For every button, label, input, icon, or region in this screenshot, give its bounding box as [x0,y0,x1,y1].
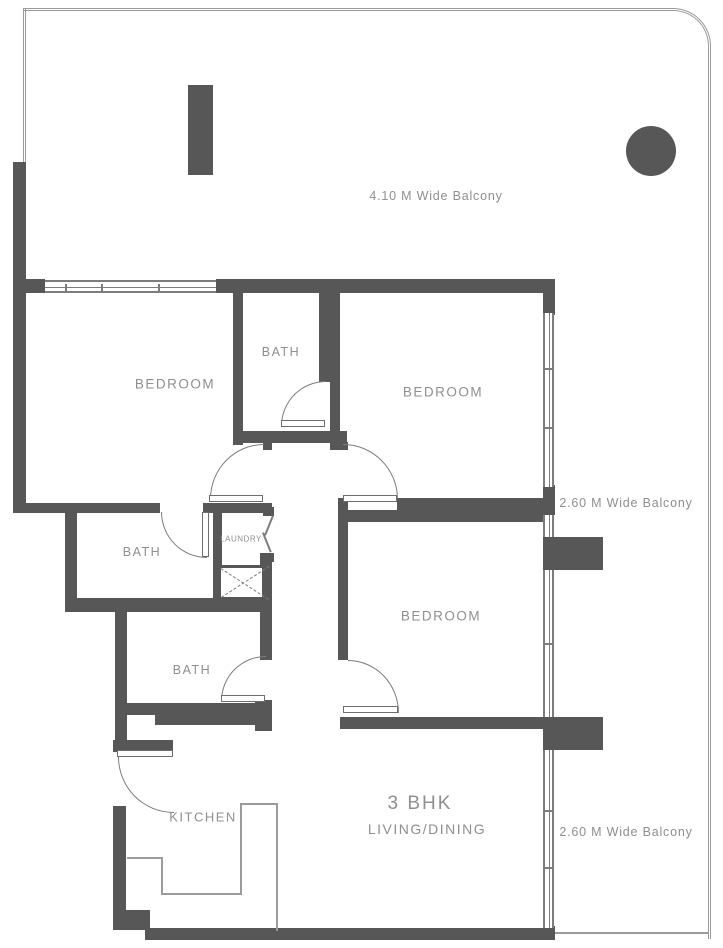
wall-segment [65,598,272,612]
wall-segment [203,503,272,513]
wall-segment [543,293,555,315]
wall-segment [338,510,543,522]
door-leaf [209,495,263,502]
door-leaf [117,750,173,757]
wall-segment [26,279,45,293]
room-label-bath-top: BATH [262,345,300,359]
door-leaf [343,495,397,502]
window-symbol [543,515,554,537]
window-mullion-tick [65,284,67,293]
wall-pier [543,537,603,570]
wall-segment [233,431,347,443]
balcony-label-right-upper: 2.60 M Wide Balcony [559,496,692,510]
balcony-column-rect [188,85,213,175]
unit-type-label: 3 BHK [388,793,453,815]
window-mullion-tick [545,867,552,869]
door-leaf [202,512,209,557]
balcony-outline-bottom [552,932,709,934]
wall-segment [543,485,555,515]
kitchen-counter-line [127,857,163,859]
window-symbol [45,280,216,293]
door-leaf [221,695,265,702]
room-label-bath-middle: BATH [123,545,161,559]
window-symbol [543,313,554,487]
wall-segment [65,510,77,605]
wall-segment [13,162,26,513]
room-label-bedroom-right: BEDROOM [401,609,481,624]
door-leaf [343,706,398,713]
wall-segment [319,292,340,382]
room-label-bedroom-top-right: BEDROOM [403,385,483,400]
shaft-cross-line [220,568,268,600]
room-label-kitchen: KITCHEN [169,810,237,825]
room-label-laundry: LAUNDRY [220,535,262,544]
kitchen-counter-line [161,857,163,895]
balcony-outline-left [23,8,26,164]
kitchen-counter-line [276,803,278,931]
kitchen-counter-line [240,803,242,895]
room-label-living-dining: LIVING/DINING [368,821,486,837]
floor-plan: 4.10 M Wide Balcony BEDROOM BATH BEDROOM… [0,0,723,948]
wall-segment [15,503,160,513]
window-mullion-tick [101,284,103,293]
shaft-cross-line [221,566,269,598]
balcony-column-round [626,126,676,176]
wall-segment [115,610,127,745]
wall-segment [340,717,543,729]
window-mullion-tick [545,368,552,370]
window-mullion-tick [158,284,160,293]
wall-segment [216,279,555,293]
wall-segment [397,498,543,510]
wall-segment [255,700,272,731]
window-mullion-tick [545,810,552,812]
window-mullion-tick [545,427,552,429]
wall-stub [263,443,272,450]
service-shaft [218,565,265,600]
room-label-bedroom-top-left: BEDROOM [135,377,215,392]
window-mullion-tick [545,643,552,645]
balcony-label-right-lower: 2.60 M Wide Balcony [559,825,692,839]
kitchen-counter-line [240,803,278,805]
wall-pier [543,717,603,750]
wall-segment [115,703,270,715]
wall-segment [155,715,270,725]
wall-segment [113,806,126,916]
balcony-label-top: 4.10 M Wide Balcony [369,189,502,203]
room-label-bath-lower: BATH [173,663,211,677]
window-symbol [543,570,554,717]
wall-segment [145,928,555,940]
wall-segment [338,498,348,660]
door-leaf [281,420,325,427]
wall-segment [233,292,243,445]
window-symbol [543,750,554,928]
kitchen-counter-line [161,893,242,895]
